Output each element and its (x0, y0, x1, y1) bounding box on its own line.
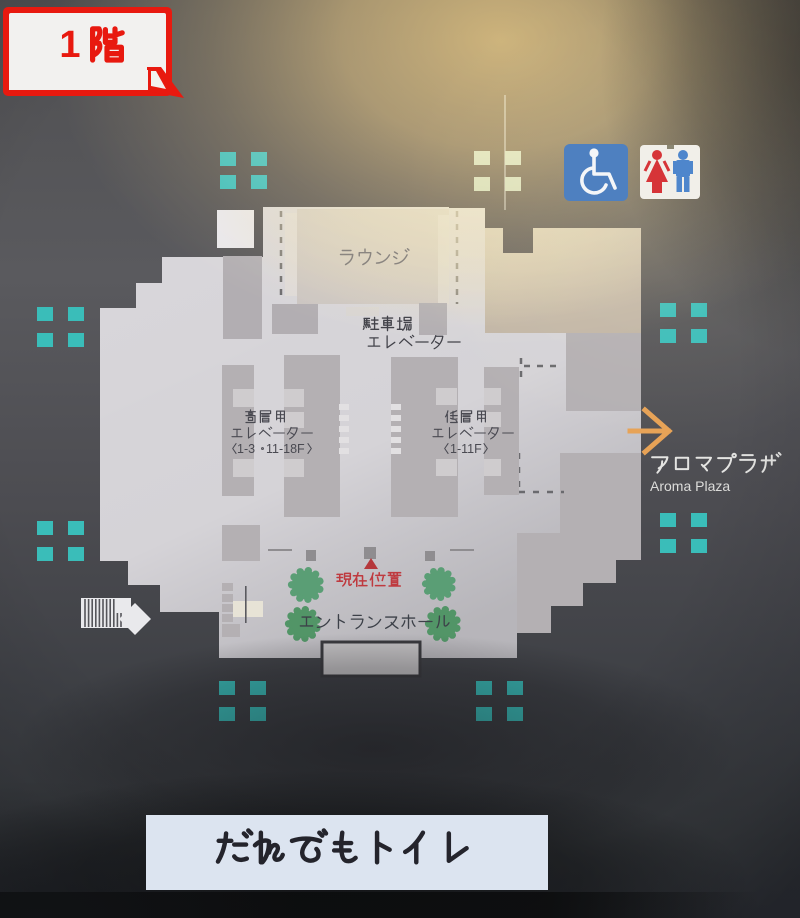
svg-text:1: 1 (59, 24, 80, 66)
svg-text:1-3: 1-3 (237, 442, 255, 456)
svg-text:1-11F: 1-11F (450, 442, 482, 456)
svg-text:11-18F: 11-18F (266, 442, 305, 456)
